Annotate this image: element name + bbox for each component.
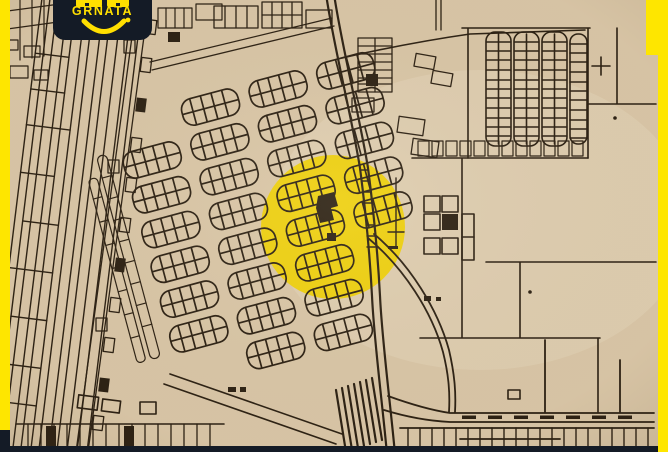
frame-right-accent <box>658 0 668 452</box>
frame-bottom-navy <box>0 446 668 452</box>
photo-vignette <box>0 0 668 452</box>
frame-right-top-accent <box>646 0 658 55</box>
listing-map-image: GRNATA <box>0 0 668 452</box>
frame-left-accent <box>0 0 10 430</box>
smile-icon <box>53 15 152 41</box>
grnata-logo: GRNATA <box>53 0 152 40</box>
cadastral-map <box>0 0 668 452</box>
